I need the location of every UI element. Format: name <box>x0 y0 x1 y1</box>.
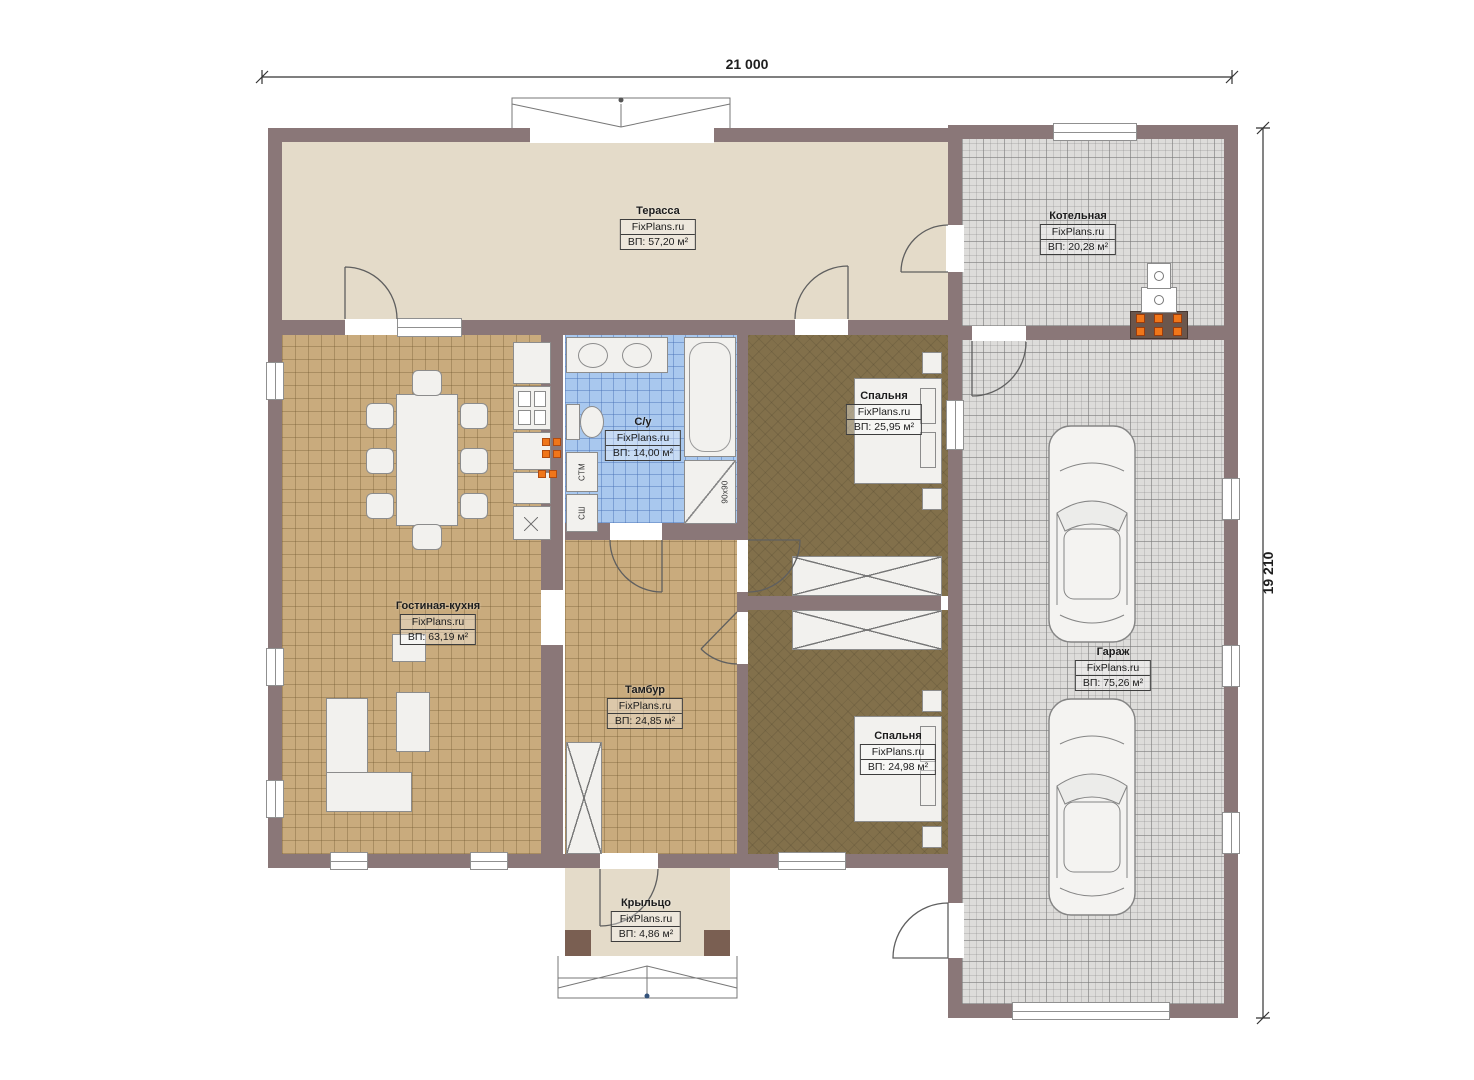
floor-terrace <box>282 142 948 320</box>
chair <box>366 493 394 519</box>
wall <box>1224 125 1238 478</box>
porch-steps <box>558 956 737 999</box>
brand-label: FixPlans.ru <box>401 615 475 630</box>
room-label-bathroom: С/у FixPlans.ru ВП: 14,00 м² <box>605 416 681 461</box>
stove-burner <box>538 470 546 478</box>
window <box>266 648 284 686</box>
room-area: ВП: 20,28 м² <box>1041 240 1115 254</box>
wall <box>268 128 530 142</box>
wardrobe <box>792 556 942 596</box>
fridge <box>513 342 551 384</box>
brand-label: FixPlans.ru <box>606 431 680 446</box>
room-area: ВП: 25,95 м² <box>847 420 921 434</box>
door-opening <box>737 612 748 664</box>
room-name: Гостиная-кухня <box>396 600 480 612</box>
washing-machine-label: СТМ <box>578 463 587 481</box>
wall <box>268 686 282 780</box>
wall <box>737 592 748 612</box>
porch-post <box>565 930 591 956</box>
kitchen-sink <box>513 506 551 540</box>
entry-door-opening <box>600 853 658 869</box>
stove-burner <box>542 438 550 446</box>
coffee-table <box>396 692 430 752</box>
window <box>946 400 964 450</box>
room-name: Спальня <box>846 390 922 402</box>
door-opening <box>345 319 397 335</box>
window <box>330 852 368 870</box>
window <box>1222 812 1240 854</box>
chair <box>366 403 394 429</box>
wall <box>948 450 962 905</box>
toilet-tank <box>566 404 580 440</box>
room-name: Крыльцо <box>611 897 681 909</box>
wall <box>848 320 948 335</box>
shower-size-label: 90x90 <box>721 480 730 503</box>
door-opening <box>946 903 964 958</box>
room-area: ВП: 63,19 м² <box>401 630 475 644</box>
wall <box>541 645 563 854</box>
window <box>266 780 284 818</box>
wall <box>508 854 600 868</box>
room-label-bedroom-bottom: Спальня FixPlans.ru ВП: 24,98 м² <box>860 730 936 775</box>
wall <box>748 596 941 610</box>
sink-symbol <box>524 517 538 531</box>
wall <box>962 326 972 340</box>
room-area: ВП: 75,26 м² <box>1076 676 1150 690</box>
room-area: ВП: 4,86 м² <box>612 927 680 941</box>
wall <box>658 854 778 868</box>
boiler-panel <box>1141 287 1177 313</box>
oven <box>513 386 551 430</box>
floor-plan-canvas: 90x90 СТМ СШ <box>0 0 1474 1080</box>
chair <box>366 448 394 474</box>
nightstand <box>922 488 942 510</box>
chair <box>412 524 442 550</box>
wall <box>1224 854 1238 1018</box>
nightstand <box>922 690 942 712</box>
terrace-entrance-opening <box>530 127 714 143</box>
wardrobe <box>566 742 602 854</box>
window <box>266 362 284 400</box>
window <box>778 852 846 870</box>
wall <box>268 400 282 648</box>
brand-label: FixPlans.ru <box>612 912 680 927</box>
boiler-meter <box>1147 263 1171 289</box>
door-opening <box>795 319 848 335</box>
door-opening <box>972 327 1026 341</box>
pillow <box>920 770 936 806</box>
window <box>1222 645 1240 687</box>
wall <box>714 128 962 142</box>
room-area: ВП: 14,00 м² <box>606 446 680 460</box>
chair <box>460 448 488 474</box>
stove-burner <box>549 470 557 478</box>
dryer: СШ <box>566 494 598 532</box>
oven-burners <box>518 391 546 425</box>
wall <box>268 128 282 362</box>
room-name: Гараж <box>1075 646 1151 658</box>
shower: 90x90 <box>684 460 736 524</box>
nightstand <box>922 352 942 374</box>
window <box>397 318 462 337</box>
wall <box>1026 326 1224 340</box>
wall <box>1224 687 1238 812</box>
bathtub <box>684 337 736 457</box>
wall <box>368 854 470 868</box>
toilet <box>580 406 604 438</box>
sink <box>622 343 652 368</box>
room-area: ВП: 57,20 м² <box>621 235 695 249</box>
wall <box>268 854 330 868</box>
room-label-porch: Крыльцо FixPlans.ru ВП: 4,86 м² <box>611 897 681 942</box>
pillow <box>920 388 936 424</box>
dimension-height-label: 19 210 <box>1260 552 1276 595</box>
passage-opening <box>541 590 563 645</box>
chair <box>412 370 442 396</box>
room-name: Котельная <box>1040 210 1116 222</box>
wall <box>948 125 962 225</box>
stove-burner <box>553 450 561 458</box>
wall <box>948 1004 1012 1018</box>
brand-label: FixPlans.ru <box>1076 661 1150 676</box>
wall <box>846 854 962 868</box>
room-label-bedroom-top: Спальня FixPlans.ru ВП: 25,95 м² <box>846 390 922 435</box>
wall <box>948 125 1055 139</box>
room-name: С/у <box>605 416 681 428</box>
brand-label: FixPlans.ru <box>847 405 921 420</box>
wall <box>282 320 345 335</box>
door-opening <box>737 540 748 592</box>
brand-label: FixPlans.ru <box>621 220 695 235</box>
stove-burner <box>553 438 561 446</box>
boiler-unit <box>1130 311 1188 339</box>
wall <box>737 335 748 540</box>
room-label-living-kitchen: Гостиная-кухня FixPlans.ru ВП: 63,19 м² <box>396 600 480 645</box>
door-opening <box>610 524 662 540</box>
wall <box>948 272 962 400</box>
chair <box>460 493 488 519</box>
terrace-steps <box>512 98 730 129</box>
stove-burner <box>542 450 550 458</box>
room-name: Тамбур <box>607 684 683 696</box>
wall <box>1170 1004 1238 1018</box>
bathtub-inner <box>689 342 731 452</box>
wardrobe <box>792 610 942 650</box>
window <box>470 852 508 870</box>
dimension-width-label: 21 000 <box>726 56 769 72</box>
washing-machine: СТМ <box>566 452 598 492</box>
window <box>1053 123 1137 141</box>
wall <box>737 664 748 854</box>
room-name: Терасса <box>620 205 696 217</box>
room-label-terrace: Терасса FixPlans.ru ВП: 57,20 м² <box>620 205 696 250</box>
chair <box>460 403 488 429</box>
wall <box>1135 125 1238 139</box>
sink <box>578 343 608 368</box>
room-label-boiler-room: Котельная FixPlans.ru ВП: 20,28 м² <box>1040 210 1116 255</box>
porch-post <box>704 930 730 956</box>
room-name: Спальня <box>860 730 936 742</box>
brand-label: FixPlans.ru <box>608 699 682 714</box>
window <box>1222 478 1240 520</box>
room-area: ВП: 24,98 м² <box>861 760 935 774</box>
door-opening <box>946 225 964 272</box>
brand-label: FixPlans.ru <box>1041 225 1115 240</box>
dryer-label: СШ <box>578 506 587 520</box>
wall <box>662 523 737 540</box>
brand-label: FixPlans.ru <box>861 745 935 760</box>
nightstand <box>922 826 942 848</box>
dining-table <box>396 394 458 526</box>
wall <box>1224 520 1238 645</box>
room-label-garage: Гараж FixPlans.ru ВП: 75,26 м² <box>1075 646 1151 691</box>
pillow <box>920 432 936 468</box>
room-label-vestibule: Тамбур FixPlans.ru ВП: 24,85 м² <box>607 684 683 729</box>
garage-door <box>1012 1002 1170 1020</box>
sofa <box>326 772 412 812</box>
room-area: ВП: 24,85 м² <box>608 714 682 728</box>
wall <box>462 320 795 335</box>
